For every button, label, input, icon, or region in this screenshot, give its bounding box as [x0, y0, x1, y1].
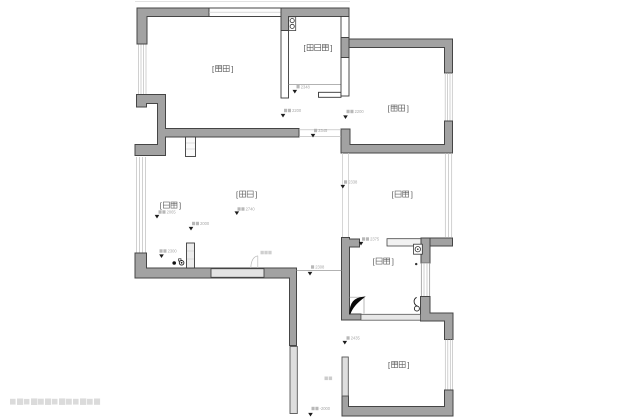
- svg-text:]: ]: [179, 201, 181, 210]
- svg-text:-2000: -2000: [320, 406, 331, 411]
- svg-text:2338: 2338: [348, 180, 358, 185]
- svg-text:]: ]: [392, 257, 394, 266]
- svg-text:]: ]: [330, 44, 332, 53]
- svg-text:2308: 2308: [315, 265, 325, 270]
- svg-text:2740: 2740: [246, 207, 256, 212]
- svg-text:2348: 2348: [301, 84, 311, 89]
- svg-text:2065: 2065: [167, 210, 177, 215]
- svg-text:]: ]: [255, 190, 257, 199]
- svg-text:2300: 2300: [168, 249, 178, 254]
- svg-text:2345: 2345: [318, 128, 328, 133]
- svg-text:2200: 2200: [355, 109, 365, 114]
- svg-text:]: ]: [411, 190, 413, 199]
- svg-text:2435: 2435: [351, 336, 361, 341]
- svg-text:2200: 2200: [292, 108, 302, 113]
- svg-text:]: ]: [407, 104, 409, 113]
- svg-text:2000: 2000: [200, 221, 210, 226]
- svg-text:2375: 2375: [370, 237, 380, 242]
- svg-text:]: ]: [231, 65, 233, 74]
- svg-text:]: ]: [407, 361, 409, 370]
